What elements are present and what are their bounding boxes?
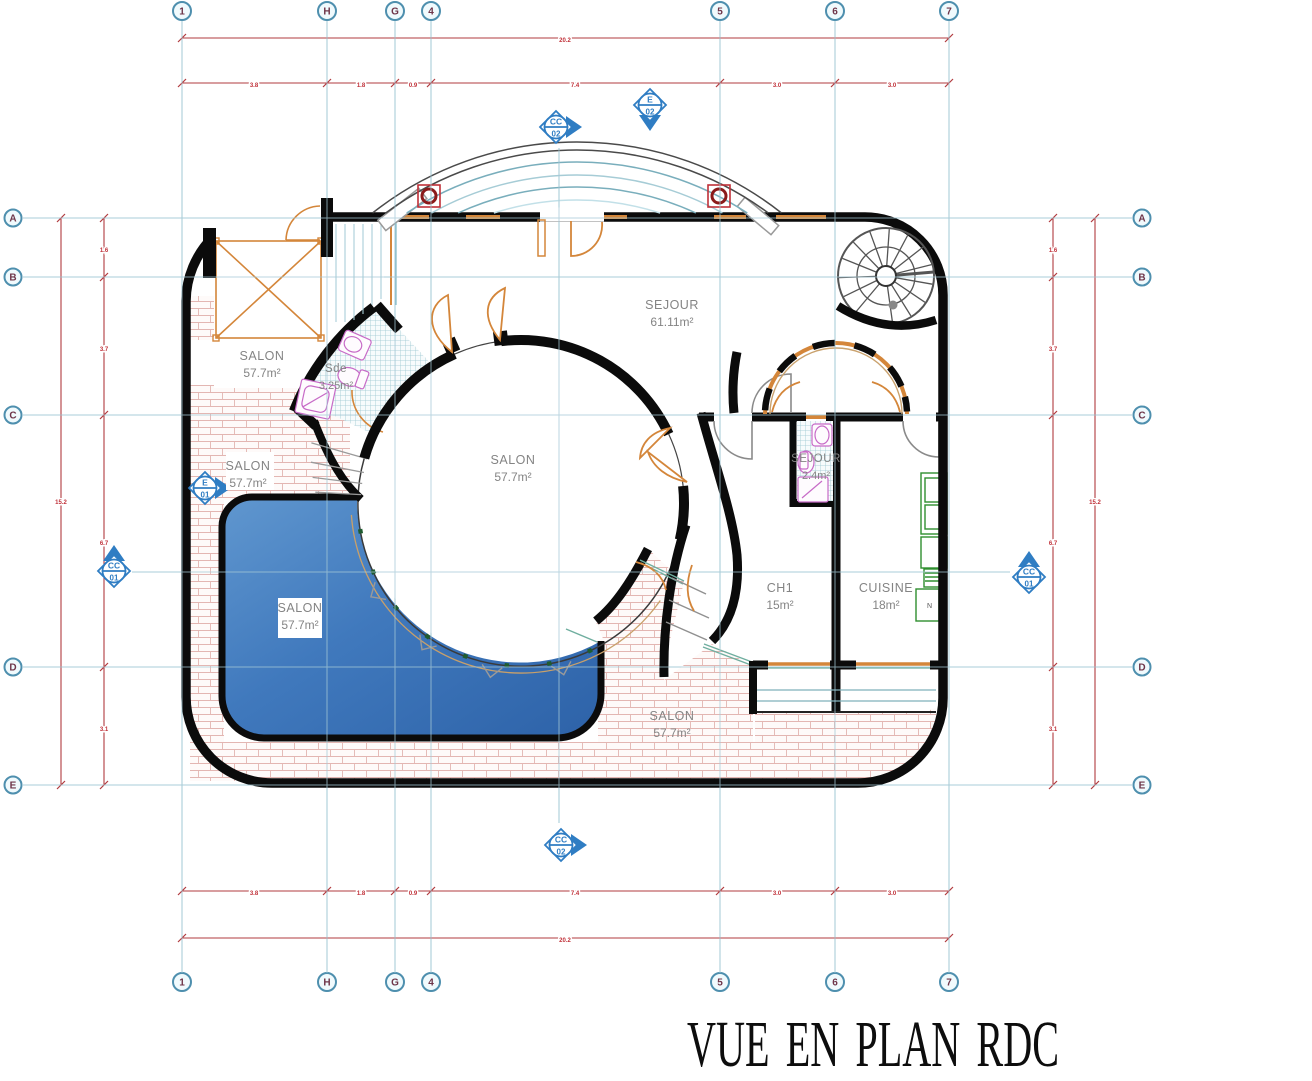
svg-text:2.4m²: 2.4m² [802,470,830,482]
svg-text:A: A [9,214,16,225]
svg-text:1.6: 1.6 [100,248,109,254]
svg-text:0.9: 0.9 [409,83,418,89]
svg-text:3.0: 3.0 [773,83,782,89]
svg-text:15m²: 15m² [766,598,793,612]
svg-text:CC: CC [108,561,120,571]
svg-text:E: E [647,95,653,105]
svg-text:CUISINE: CUISINE [859,581,913,595]
svg-text:01: 01 [201,491,210,500]
svg-text:CH1: CH1 [767,581,794,595]
svg-text:6.7: 6.7 [1049,541,1058,547]
svg-text:SALON: SALON [278,601,323,615]
svg-text:H: H [323,7,330,18]
svg-text:1.8: 1.8 [357,891,366,897]
svg-text:3.8: 3.8 [250,891,259,897]
svg-text:SEJOUR: SEJOUR [791,453,841,465]
svg-text:B: B [9,273,16,284]
svg-text:18m²: 18m² [872,598,899,612]
svg-text:15.2: 15.2 [1089,500,1101,506]
svg-text:5: 5 [717,7,723,18]
svg-text:G: G [391,978,399,989]
svg-text:H: H [323,978,330,989]
svg-text:1.8: 1.8 [357,83,366,89]
svg-text:57.7m²: 57.7m² [494,470,531,484]
svg-text:5: 5 [717,978,723,989]
svg-text:E: E [1139,781,1146,792]
svg-text:6: 6 [832,7,838,18]
svg-text:3.7: 3.7 [1049,347,1058,353]
svg-text:02: 02 [552,130,561,139]
svg-text:A: A [1138,214,1145,225]
svg-text:SALON: SALON [491,453,536,467]
svg-text:N: N [927,603,932,610]
svg-text:7: 7 [946,978,952,989]
svg-text:D: D [9,663,16,674]
svg-text:61.11m²: 61.11m² [650,315,693,329]
svg-text:7.4: 7.4 [571,83,580,89]
svg-text:E: E [10,781,17,792]
svg-text:4: 4 [428,7,434,18]
svg-text:3.0: 3.0 [888,891,897,897]
svg-text:SALON: SALON [226,459,271,473]
svg-text:57.7m²: 57.7m² [281,618,318,632]
svg-text:57.7m²: 57.7m² [229,476,266,490]
svg-text:1: 1 [179,7,185,18]
svg-text:SALON: SALON [240,349,285,363]
svg-text:VUE EN PLAN RDC: VUE EN PLAN RDC [687,1008,1059,1081]
svg-text:1: 1 [179,978,185,989]
svg-text:B: B [1138,273,1145,284]
svg-text:CC: CC [555,835,567,845]
svg-text:02: 02 [557,848,566,857]
svg-text:3.1: 3.1 [1049,727,1058,733]
svg-text:57.7m²: 57.7m² [653,726,690,740]
svg-text:7.4: 7.4 [571,891,580,897]
svg-text:Sde: Sde [325,363,347,375]
svg-text:6: 6 [832,978,838,989]
svg-text:3.7: 3.7 [100,347,109,353]
svg-text:C: C [9,411,16,422]
svg-text:57.7m²: 57.7m² [243,366,280,380]
svg-text:20.2: 20.2 [559,38,571,44]
svg-text:7: 7 [946,7,952,18]
svg-text:3.8: 3.8 [250,83,259,89]
svg-text:CC: CC [550,117,562,127]
svg-text:01: 01 [110,574,119,583]
svg-text:3.25m²: 3.25m² [319,380,354,392]
svg-text:3.0: 3.0 [773,891,782,897]
svg-text:SALON: SALON [650,709,695,723]
svg-text:15.2: 15.2 [55,500,67,506]
svg-text:01: 01 [1025,580,1034,589]
svg-text:02: 02 [646,108,655,117]
svg-text:CC: CC [1023,567,1035,577]
svg-text:3.1: 3.1 [100,727,109,733]
svg-text:1.6: 1.6 [1049,248,1058,254]
svg-text:4: 4 [428,978,434,989]
svg-text:20.2: 20.2 [559,938,571,944]
svg-text:SEJOUR: SEJOUR [645,298,699,312]
svg-text:6.7: 6.7 [100,541,109,547]
svg-text:G: G [391,7,399,18]
svg-text:3.0: 3.0 [888,83,897,89]
svg-text:D: D [1138,663,1145,674]
svg-text:E: E [202,478,208,488]
svg-text:C: C [1138,411,1145,422]
svg-text:0.9: 0.9 [409,891,418,897]
